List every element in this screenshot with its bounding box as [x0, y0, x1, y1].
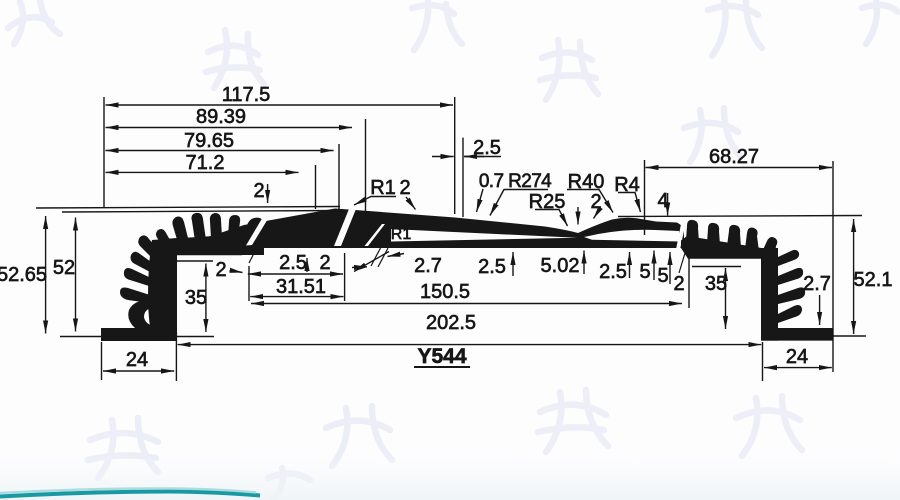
svg-text:89.39: 89.39 [196, 106, 246, 128]
svg-text:79.65: 79.65 [184, 130, 234, 152]
svg-text:4: 4 [657, 190, 668, 212]
svg-text:2: 2 [215, 259, 226, 281]
svg-text:R1: R1 [391, 226, 412, 243]
svg-text:2: 2 [399, 177, 410, 199]
svg-text:68.27: 68.27 [709, 146, 759, 168]
svg-text:2.5: 2.5 [599, 261, 627, 283]
svg-text:2: 2 [673, 273, 684, 295]
svg-text:2: 2 [253, 180, 264, 202]
svg-text:35: 35 [705, 273, 727, 295]
svg-text:24: 24 [786, 346, 808, 368]
svg-text:52.1: 52.1 [854, 269, 893, 291]
svg-text:52.65: 52.65 [0, 264, 47, 286]
svg-text:R40: R40 [568, 171, 605, 193]
svg-text:2.7: 2.7 [803, 273, 831, 295]
svg-text:2.5: 2.5 [279, 252, 307, 274]
svg-text:2.5: 2.5 [478, 256, 506, 278]
svg-text:R1: R1 [370, 177, 396, 199]
svg-text:2: 2 [319, 252, 330, 274]
svg-text:5: 5 [657, 265, 668, 287]
svg-text:R4: R4 [614, 174, 640, 196]
svg-text:2.5: 2.5 [473, 137, 501, 159]
svg-text:24: 24 [126, 349, 148, 371]
svg-text:5: 5 [639, 261, 650, 283]
svg-text:202.5: 202.5 [426, 312, 476, 334]
svg-text:5.02: 5.02 [541, 255, 580, 277]
svg-text:Y544: Y544 [417, 345, 466, 368]
svg-text:0.7 R274: 0.7 R274 [479, 171, 552, 192]
svg-text:71.2: 71.2 [186, 152, 225, 174]
svg-text:52: 52 [53, 257, 75, 279]
svg-text:R25: R25 [529, 191, 566, 213]
svg-text:150.5: 150.5 [420, 281, 470, 303]
svg-text:31.51: 31.51 [276, 276, 326, 298]
svg-text:2.7: 2.7 [414, 255, 442, 277]
svg-text:2: 2 [590, 191, 601, 213]
svg-text:35: 35 [185, 287, 207, 309]
svg-text:117.5: 117.5 [222, 84, 271, 106]
